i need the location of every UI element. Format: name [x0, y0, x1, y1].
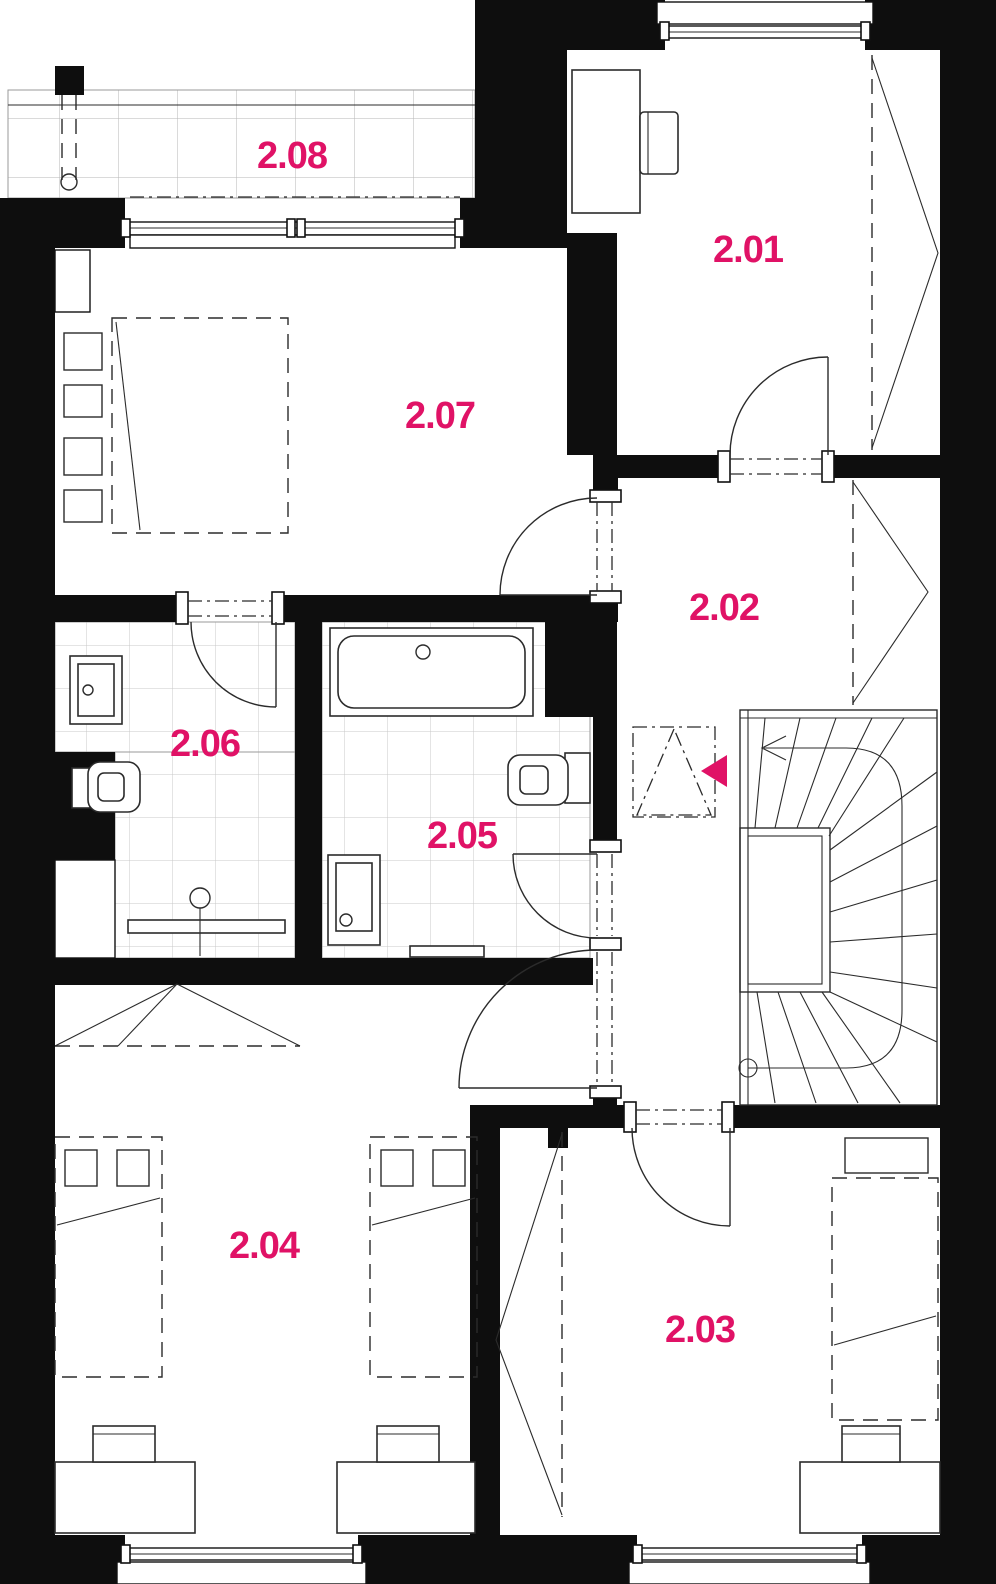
- room-label-203: 2.03: [665, 1309, 735, 1351]
- chair-203: [842, 1426, 900, 1462]
- toilet-205: [508, 753, 590, 805]
- towel-rail-205: [410, 946, 484, 957]
- desk-204-right: [337, 1462, 475, 1533]
- balcony-tiles: [8, 90, 475, 198]
- room-label-206: 2.06: [170, 723, 240, 765]
- bed-204-left: [55, 1137, 162, 1377]
- room-label-208: 2.08: [257, 135, 327, 177]
- wall-niche: [55, 860, 115, 958]
- closet-202: [853, 480, 928, 705]
- door-203: [624, 1102, 734, 1226]
- entry-arrow-icon: [701, 755, 727, 787]
- toilet-206: [72, 762, 140, 812]
- window-201: [657, 2, 873, 40]
- room-label-207: 2.07: [405, 395, 475, 437]
- closet-204: [55, 984, 300, 1046]
- nightstand-207-b: [64, 385, 102, 417]
- window-203: [629, 1535, 870, 1584]
- attic-hatch-triangle: [637, 729, 711, 815]
- room-label-201: 2.01: [713, 229, 784, 271]
- staircase: [739, 710, 937, 1105]
- closet-201: [872, 55, 938, 450]
- nightstand-203: [845, 1138, 928, 1173]
- desk-204-left: [55, 1462, 195, 1533]
- desk-201: [572, 70, 640, 213]
- stair-void: [740, 828, 830, 992]
- sink-205: [328, 855, 380, 945]
- bed-207: [64, 318, 288, 533]
- chair-204-right: [377, 1426, 439, 1462]
- radiator-207: [55, 250, 90, 312]
- room-label-204: 2.04: [229, 1225, 300, 1267]
- stair-walk-line: [748, 748, 902, 1068]
- bed-204-right: [370, 1137, 477, 1377]
- hatch-and-marker: [633, 727, 727, 817]
- bed-203: [832, 1138, 938, 1420]
- closet-203: [496, 1132, 562, 1517]
- door-201: [718, 357, 834, 482]
- room-label-205: 2.05: [427, 815, 498, 857]
- nightstand-207-c: [64, 438, 102, 475]
- window-balcony-door: [121, 219, 464, 248]
- floor-plan-page: 2.01 2.02 2.03 2.04 2.05 2.06 2.07 2.08: [0, 0, 996, 1584]
- balcony-column: [55, 66, 84, 95]
- bathtub-205: [330, 628, 533, 716]
- nightstand-207-d: [64, 490, 102, 522]
- nightstand-207-a: [64, 333, 102, 370]
- window-204: [117, 1535, 366, 1584]
- room-label-202: 2.02: [689, 587, 759, 629]
- desk-203: [800, 1462, 940, 1533]
- door-207: [500, 490, 621, 603]
- balcony: [8, 66, 475, 198]
- chair-201: [640, 112, 678, 174]
- sink-206: [70, 656, 122, 724]
- floor-plan-drawing: 2.01 2.02 2.03 2.04 2.05 2.06 2.07 2.08: [0, 0, 996, 1584]
- chair-204-left: [93, 1426, 155, 1462]
